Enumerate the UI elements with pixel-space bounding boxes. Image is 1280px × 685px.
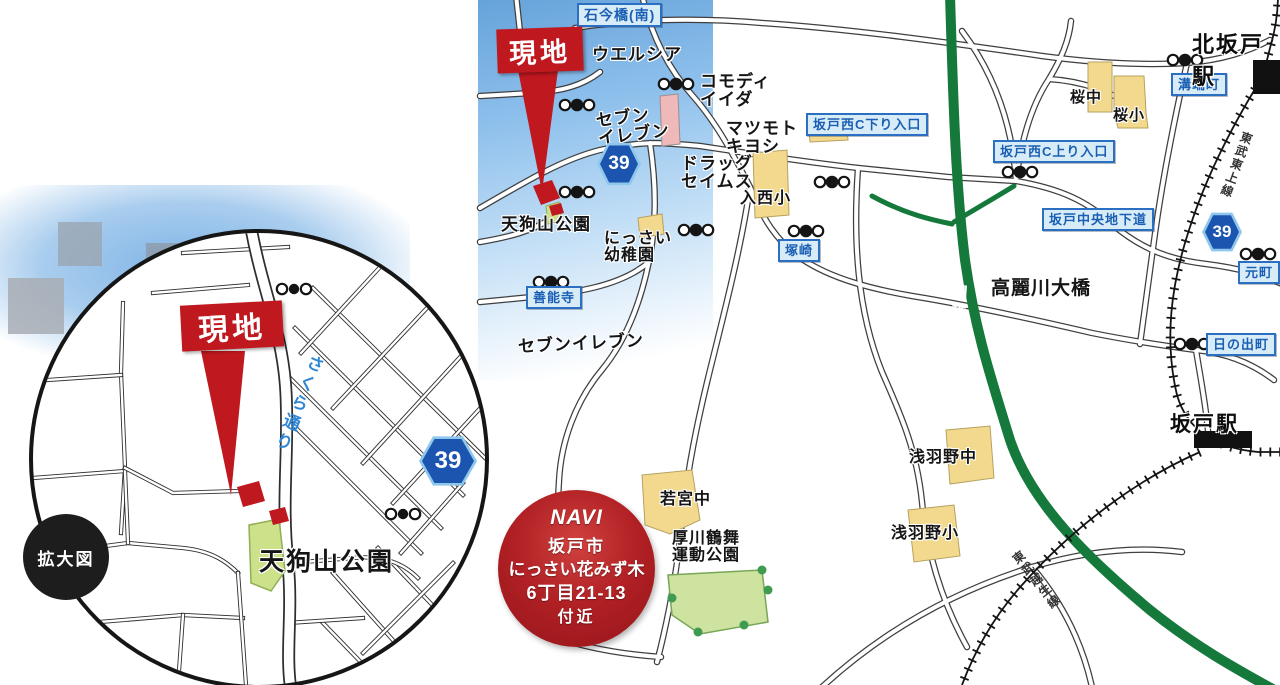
sign-sakado-underpass: 坂戸中央地下道 (1042, 208, 1154, 231)
poi-sakura-jhs: 桜中 (1070, 90, 1102, 106)
poi-nissai-elementary: 入西小 (740, 190, 791, 207)
sign-motomachi: 元町 (1238, 261, 1280, 284)
poi-tenguyama-park-inset: 天狗山公園 (259, 549, 394, 576)
navi-block-number: 6丁目21-13 (498, 579, 655, 605)
sign-sakadonishi-up: 坂戸西C上り入口 (993, 140, 1115, 163)
poi-nissai-kindergarten: にっさい 幼稚園 (604, 230, 672, 265)
atsukawa-park-area (668, 566, 773, 637)
navi-district: にっさい花みず木 (498, 555, 655, 580)
enlarged-view-caption: 拡大図 (23, 514, 109, 600)
poi-sakura-es: 桜小 (1113, 108, 1145, 124)
enlarged-inset-map: 現地 さくら通り 天狗山公園 39 (29, 229, 489, 685)
navi-badge: NAVI (498, 506, 655, 530)
traffic-signals (534, 55, 1275, 349)
poi-komagawa-bridge: 高麗川大橋 (991, 279, 1091, 300)
sign-ishiima-bridge: 石今橋(南) (577, 3, 662, 27)
poi-welcia: ウエルシア (592, 46, 682, 64)
site-flag-text: 現地 (508, 29, 571, 70)
site-flag-main: 現地 (496, 27, 583, 74)
kanetsu-expressway-label: 関越道 (945, 283, 970, 341)
navi-address-badge: NAVI 坂戸市 にっさい花みず木 6丁目21-13 付近 (498, 490, 655, 647)
poi-asabano-es: 浅羽野小 (891, 525, 959, 542)
poi-drug-seimus: ドラッグ セイムス (681, 155, 753, 192)
sign-sakadonishi-down: 坂戸西C下り入口 (806, 113, 928, 136)
poi-asabano-jhs: 浅羽野中 (909, 449, 977, 466)
sign-text: 石今橋(南) (584, 7, 655, 23)
navi-city: 坂戸市 (498, 532, 655, 557)
site-flag-text: 現地 (197, 302, 267, 349)
kita-sakado-station-label: 北坂戸駅 (1192, 27, 1280, 91)
poi-matsumoto-kiyoshi: マツモト キヨシ (726, 120, 798, 157)
sign-zennoji: 善能寺 (526, 286, 582, 309)
site-flag-inset: 現地 (180, 300, 284, 351)
nissai-elementary-building (753, 150, 789, 218)
sign-hinodecho: 日の出町 (1206, 333, 1276, 356)
location-map-page: 石今橋(南) 現地 ウエルシア コモディ イイダ セブン イレブン マツモト キ… (0, 0, 1280, 685)
navi-vicinity: 付近 (498, 603, 655, 627)
poi-atsukawa-park: 厚川鶴舞 運動公園 (672, 530, 740, 565)
poi-commodi-iida: コモディ イイダ (700, 73, 771, 110)
sign-tsukazaki: 塚崎 (778, 239, 820, 262)
poi-tenguyama-park-main: 天狗山公園 (501, 216, 591, 234)
sakado-station-label: 坂戸駅 (1170, 408, 1239, 438)
poi-wakamiya-jhs: 若宮中 (660, 491, 711, 508)
